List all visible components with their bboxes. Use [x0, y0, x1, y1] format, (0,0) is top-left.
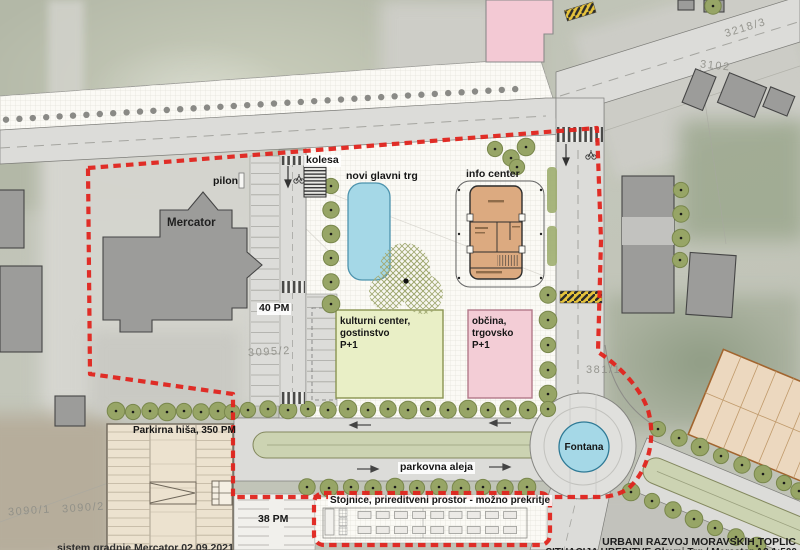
- tree-icon: [480, 402, 495, 417]
- tree-icon: [707, 520, 722, 535]
- park-median: [253, 432, 549, 458]
- tree-icon: [500, 401, 516, 417]
- pilon-marker: [239, 173, 244, 188]
- label-kolesa: kolesa: [304, 155, 341, 167]
- market-stall: [431, 527, 444, 534]
- tree-icon: [776, 475, 791, 490]
- tree-icon: [440, 402, 456, 418]
- tree-icon: [339, 400, 357, 418]
- label-fontana: Fontana: [562, 442, 606, 453]
- tree-icon: [260, 401, 276, 417]
- market-stall: [394, 527, 407, 534]
- yellow-crosswalk: [564, 2, 596, 21]
- tree-icon: [540, 362, 556, 378]
- tree-icon: [519, 401, 537, 419]
- tree-icon: [539, 385, 557, 403]
- yellow-crosswalk: [560, 291, 602, 303]
- tree-icon: [487, 141, 502, 156]
- tree-icon: [539, 311, 557, 329]
- tree-icon: [734, 457, 750, 473]
- tree-icon: [517, 138, 535, 156]
- market-stall: [504, 527, 517, 534]
- market-stall: [413, 512, 426, 519]
- tree-icon: [685, 510, 703, 528]
- tree-icon: [158, 403, 176, 421]
- tree-icon: [673, 206, 689, 222]
- label-40pm: 40 PM: [257, 303, 291, 315]
- market-stall: [449, 527, 462, 534]
- site-plan: kolesa pilon Mercator novi glavni trg in…: [0, 0, 800, 550]
- tree-icon: [142, 403, 158, 419]
- parking-garage: [107, 424, 233, 550]
- tree-icon: [125, 404, 140, 419]
- label-mercator: Mercator: [167, 217, 216, 230]
- tree-icon: [299, 479, 315, 495]
- parcel-number: 3095/2: [248, 345, 291, 359]
- tree-icon: [672, 252, 687, 267]
- tree-icon: [380, 401, 396, 417]
- municipality-use: občina, trgovsko: [472, 316, 513, 339]
- market-stall: [485, 527, 498, 534]
- tree-icon: [644, 493, 659, 508]
- mercator-building: [103, 192, 262, 332]
- tree-icon: [754, 465, 772, 483]
- culture-center-floors: P+1: [340, 340, 358, 351]
- tree-icon: [665, 502, 681, 518]
- market-stall: [431, 512, 444, 519]
- pink-existing-building: [486, 0, 553, 62]
- tree-icon: [420, 401, 435, 416]
- tree-icon: [540, 337, 555, 352]
- market-stall: [504, 512, 517, 519]
- tree-icon: [322, 225, 340, 243]
- tree-icon: [107, 402, 125, 420]
- bike-rack-icon: [304, 166, 326, 197]
- label-info-center: info center: [466, 169, 520, 181]
- culture-center-use: kulturni center, gostinstvo: [340, 316, 410, 339]
- municipality-floors: P+1: [472, 340, 490, 351]
- market-stall: [485, 512, 498, 519]
- tree-icon: [323, 202, 339, 218]
- tree-icon: [323, 274, 339, 290]
- tree-icon: [671, 430, 687, 446]
- tree-icon: [713, 448, 728, 463]
- tree-icon: [176, 403, 191, 418]
- label-pilon: pilon: [213, 176, 238, 188]
- tree-icon: [323, 250, 338, 265]
- market-stall: [394, 512, 407, 519]
- tree-icon: [193, 404, 209, 420]
- tree-icon: [240, 402, 255, 417]
- label-culture-center: kulturni center, gostinstvo P+1: [340, 316, 440, 352]
- stairs-icon: [212, 481, 232, 505]
- market-stall: [449, 512, 462, 519]
- footer-note: sistem gradnje Mercator 02.09.2021: [57, 542, 234, 550]
- label-parking-garage: Parkirna hiša, 350 PM: [133, 425, 236, 436]
- label-novi-glavni-trg: novi glavni trg: [346, 171, 418, 183]
- tree-icon: [672, 229, 690, 247]
- tree-icon: [673, 182, 688, 197]
- market-stall: [467, 512, 480, 519]
- market-stall: [358, 527, 371, 534]
- tree-icon: [791, 483, 800, 499]
- tree-icon: [322, 295, 340, 313]
- tree-icon: [540, 287, 556, 303]
- tree-icon: [705, 0, 721, 14]
- market-stall: [376, 512, 389, 519]
- tree-icon: [691, 438, 709, 456]
- tree-icon: [459, 400, 477, 418]
- market-stall: [467, 527, 480, 534]
- market-stall: [413, 527, 426, 534]
- label-38pm: 38 PM: [258, 514, 288, 526]
- market-stall: [376, 527, 389, 534]
- tree-icon: [399, 401, 417, 419]
- tree-icon: [540, 401, 555, 416]
- parcel-number: 381/1: [586, 364, 621, 376]
- market-stall: [358, 512, 371, 519]
- label-parkovna-aleja: parkovna aleja: [398, 462, 475, 474]
- tree-icon: [320, 402, 336, 418]
- label-stojnice: Stojnice, prireditveni prostor - možno p…: [328, 495, 552, 506]
- tree-icon: [360, 402, 375, 417]
- label-municipality: občina, trgovsko P+1: [472, 316, 532, 352]
